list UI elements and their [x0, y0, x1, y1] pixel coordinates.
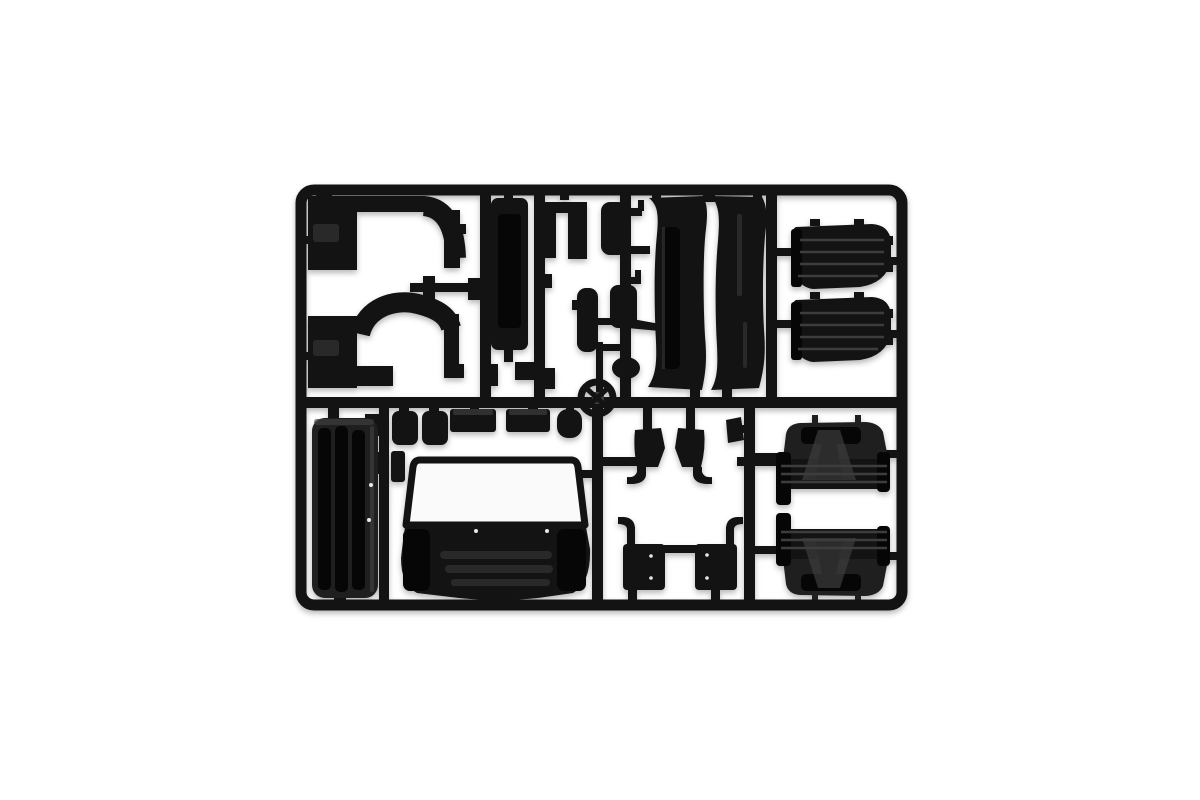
roof-panel-groove: [663, 227, 680, 369]
runner-segment: [744, 404, 755, 604]
mudguard-clip: [884, 236, 893, 245]
strip-body: [577, 288, 598, 352]
gate: [753, 546, 779, 554]
tray-top-highlight: [453, 409, 493, 415]
runner-segment: [600, 457, 638, 466]
step-panel-connector: [664, 545, 696, 553]
part-pot: Round container part: [557, 409, 582, 438]
arch-cover-pin: [812, 415, 818, 425]
small-block: [482, 364, 498, 386]
mudguard-clip: [884, 336, 893, 345]
ejector-dot: [649, 576, 653, 580]
runner-segment: [596, 344, 624, 351]
tank-body: [392, 411, 418, 445]
panel-top-bar: [355, 196, 425, 212]
runner-segment: [592, 404, 603, 604]
model-kit-sprue-photo: Black plastic model-kit sprue with truck…: [0, 0, 1200, 800]
rear-panel-ridge: [318, 428, 331, 590]
bracket-stub: [741, 425, 748, 433]
runner-segment: [766, 190, 777, 402]
front-panel-side-part: [391, 451, 405, 482]
rear-panel-ridge: [352, 430, 365, 590]
bracket-top: [544, 202, 587, 213]
roof-streak: [737, 214, 742, 296]
strip-tab: [572, 300, 578, 310]
mudguard-body: [792, 297, 891, 362]
roof-groove-rim: [662, 227, 665, 369]
windscreen-glass: [406, 460, 585, 525]
panel-bottom-bar: [355, 366, 393, 386]
mirror-arm-tip: [638, 200, 644, 211]
mudguard-tab: [854, 292, 864, 299]
rear-panel-ridge: [335, 426, 348, 592]
mudguard-tab: [854, 219, 864, 226]
fitting: [537, 274, 552, 288]
ejector-dot: [649, 554, 653, 558]
grille-pillar: [557, 529, 586, 591]
grille-pillar: [403, 529, 430, 591]
gate: [504, 348, 513, 362]
ejector-dot: [545, 529, 549, 533]
part-round-fitting: Round fitting: [612, 357, 640, 379]
gate: [753, 453, 779, 461]
tank-body: [422, 411, 448, 445]
ejector-dot: [705, 553, 709, 557]
roof-streak: [743, 322, 747, 368]
pot-body: [557, 409, 582, 438]
mirror-blade: [625, 246, 650, 254]
gate: [686, 404, 695, 431]
mudguard-tab: [810, 219, 820, 226]
rear-panel-top-highlight: [314, 419, 374, 425]
part-mudguard-top-1: Ribbed mudguard (upper right, first): [792, 219, 893, 289]
runner-segment: [379, 404, 389, 604]
fitting: [515, 362, 537, 380]
gate: [775, 248, 793, 256]
rear-panel-edge-highlight: [370, 426, 374, 592]
panel-highlight: [313, 224, 339, 242]
tank-neck: [399, 403, 409, 412]
pillar-inset: [498, 214, 521, 328]
mudguard-body: [792, 224, 891, 289]
grille-slat: [445, 565, 553, 573]
tray-top-highlight: [509, 409, 547, 415]
panel-highlight: [313, 340, 339, 356]
fitting-body: [612, 357, 640, 379]
mirror-housing: [601, 202, 627, 255]
mudguard-end-cap: [791, 302, 802, 360]
ejector-dot: [705, 576, 709, 580]
mudguard-tab: [810, 292, 820, 299]
mudguard-clip: [884, 309, 893, 318]
step-panel-body: [623, 544, 665, 590]
arch-cover-pin: [855, 415, 861, 425]
arch-cover-foot: [776, 452, 791, 505]
ejector-dot: [474, 529, 478, 533]
gate: [643, 404, 652, 432]
ejector-dot: [367, 518, 371, 522]
fitting: [542, 368, 555, 389]
grille-slat: [440, 551, 552, 559]
gate: [775, 320, 793, 328]
mudguard-end-cap: [791, 229, 802, 287]
part-mudguard-top-2: Ribbed mudguard (upper right, second): [792, 292, 893, 362]
ejector-dot: [369, 483, 373, 487]
panel-tab: [444, 364, 464, 378]
mirror-arm-tip: [635, 270, 641, 280]
grille-slat: [451, 579, 550, 586]
arch-cover-cap: [877, 452, 890, 492]
step-panel-body: [695, 544, 737, 590]
tank-neck: [429, 403, 439, 412]
connector-pad: [468, 278, 485, 300]
mudguard-clip: [884, 263, 893, 272]
